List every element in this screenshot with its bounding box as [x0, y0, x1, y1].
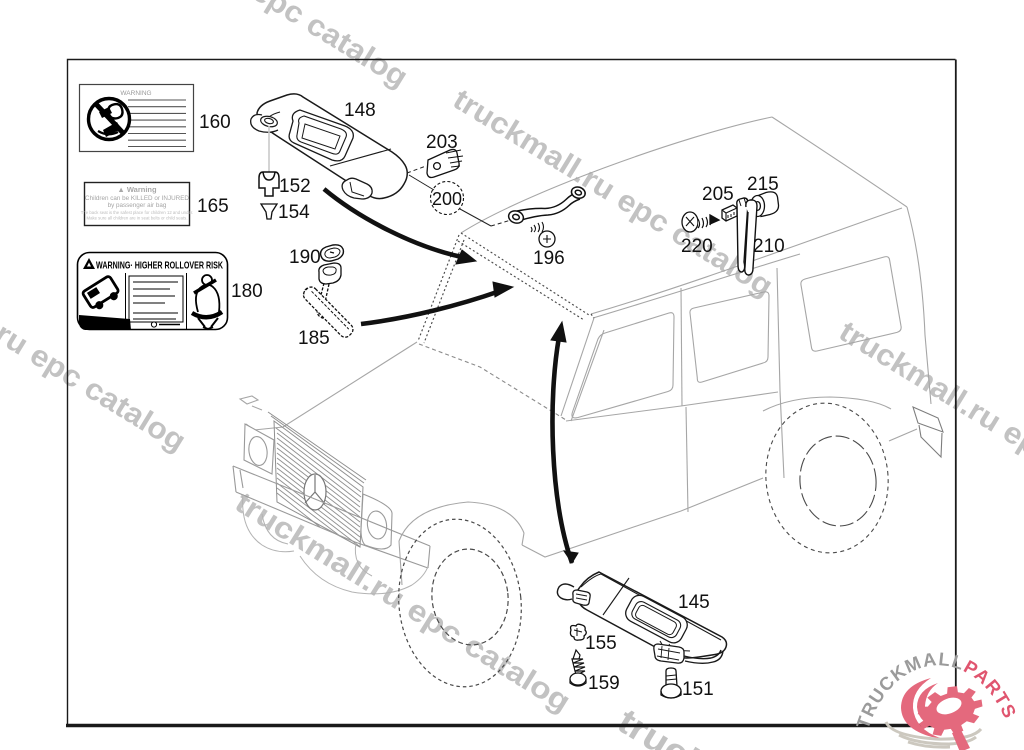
svg-text:203: 203: [426, 132, 458, 153]
svg-text:by passenger air bag: by passenger air bag: [108, 202, 167, 209]
svg-text:196: 196: [533, 248, 565, 269]
svg-text:WARNING· HIGHER ROLLOVER RISK: WARNING· HIGHER ROLLOVER RISK: [96, 261, 224, 272]
svg-text:180: 180: [231, 281, 263, 302]
svg-text:148: 148: [344, 100, 376, 121]
svg-text:159: 159: [588, 673, 620, 694]
svg-text:205: 205: [702, 184, 734, 205]
svg-text:220: 220: [681, 236, 713, 257]
svg-text:185: 185: [298, 328, 330, 349]
svg-text:215: 215: [747, 174, 779, 195]
svg-text:▲ Warning: ▲ Warning: [117, 185, 157, 194]
svg-text:Children can be KILLED or INJU: Children can be KILLED or INJURED: [85, 195, 189, 202]
svg-text:160: 160: [199, 112, 231, 133]
svg-text:210: 210: [753, 236, 785, 257]
svg-text:The back seat is the safest pl: The back seat is the safest place for ch…: [81, 210, 194, 215]
svg-text:165: 165: [197, 196, 229, 217]
svg-text:154: 154: [278, 202, 310, 223]
svg-text:200: 200: [432, 189, 462, 209]
svg-text:WARNING: WARNING: [120, 90, 151, 97]
svg-text:145: 145: [678, 592, 710, 613]
svg-text:152: 152: [279, 176, 311, 197]
svg-text:190: 190: [289, 247, 321, 268]
svg-text:Make sure all children are in: Make sure all children are in seat belts…: [86, 216, 187, 221]
svg-text:155: 155: [585, 633, 617, 654]
svg-text:151: 151: [682, 679, 714, 700]
